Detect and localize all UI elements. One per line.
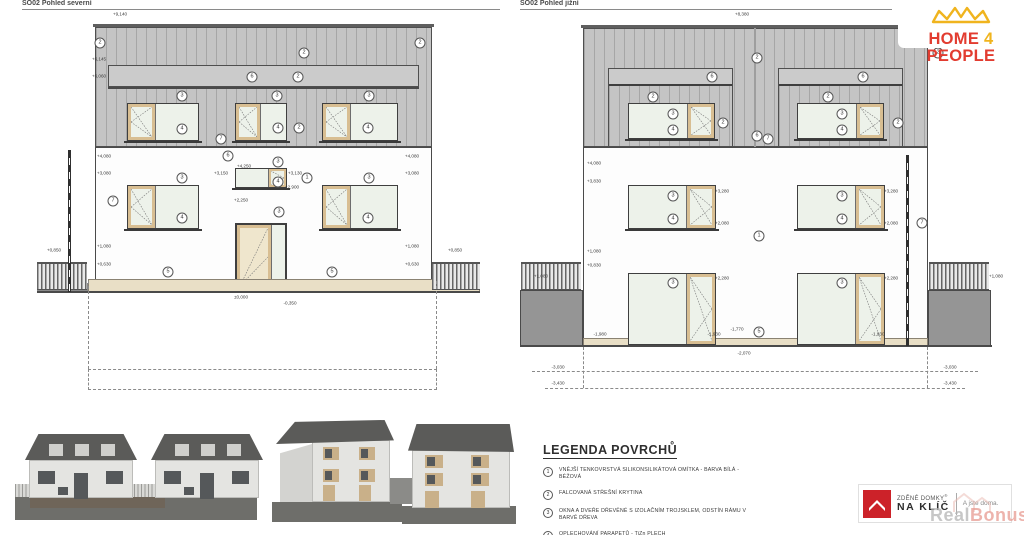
north-marker-circle: 3: [177, 91, 188, 102]
south-fence-right: [929, 262, 989, 290]
north-marker-circle: 3: [272, 91, 283, 102]
north-marker-circle: 4: [273, 177, 284, 188]
south-ground-line: [520, 345, 992, 347]
south-dimension-label: -3,030: [551, 365, 564, 370]
crown-icon: [929, 5, 993, 25]
south-dimension-label: +1,080: [587, 249, 601, 254]
south-dimension-label: +3,830: [587, 179, 601, 184]
legend-num-2: 2: [543, 490, 553, 500]
north-dimension-label: +1,080: [97, 244, 111, 249]
north-window-right: [322, 185, 398, 229]
south-dimension-label: +3,280: [884, 189, 898, 194]
south-elevation-title: SO02 Pohled jižní: [520, 0, 579, 7]
south-marker-circle: 3: [837, 109, 848, 120]
south-dimension-label: -1,930: [707, 332, 720, 337]
south-underground-line-2: [545, 388, 965, 389]
south-dimension-label: +2,280: [715, 276, 729, 281]
south-level-staff: [906, 155, 909, 346]
legend-num-3: 3: [543, 508, 553, 518]
north-foundation-dash-right: [436, 281, 437, 369]
legend-item-3: 3 OKNA A DVEŘE DŘEVĚNÉ S IZOLAČNÍM TROJS…: [543, 508, 778, 522]
south-marker-circle: 6: [752, 131, 763, 142]
render-b-house1-roof: [276, 420, 394, 444]
south-fence-left: [521, 262, 581, 290]
legend-num-1: 1: [543, 467, 553, 477]
north-title-rule: [22, 9, 500, 10]
south-dimension-label: +0,830: [587, 263, 601, 268]
north-marker-circle: 4: [363, 123, 374, 134]
render-front-view: [15, 424, 257, 524]
render-a-house2-roof: [151, 434, 263, 460]
south-marker-circle: 4: [668, 214, 679, 225]
south-dimension-label: +1,080: [989, 274, 1003, 279]
north-dimension-label: +1,080: [405, 244, 419, 249]
north-marker-circle: 2: [294, 123, 305, 134]
legend-text-4: OPLECHOVÁNÍ PARAPETŮ - TiZn PLECH: [559, 531, 666, 535]
north-dimension-label: +6,060: [92, 74, 106, 79]
north-marker-circle: 7: [108, 196, 119, 207]
south-dimension-label: -2,070: [737, 351, 750, 356]
legend-text-3: OKNA A DVEŘE DŘEVĚNÉ S IZOLAČNÍM TROJSKL…: [559, 508, 759, 522]
south-dimension-label: -1,930: [871, 332, 884, 337]
north-dimension-label: +4,080: [405, 154, 419, 159]
north-marker-circle: 4: [363, 213, 374, 224]
south-marker-circle: 6: [707, 72, 718, 83]
north-elevation-title: SO02 Pohled severní: [22, 0, 92, 7]
legend-item-1: 1 VNĚJŠÍ TENKOVRSTVÁ SILIKONSILIKÁTOVÁ O…: [543, 467, 778, 481]
south-marker-circle: 2: [718, 118, 729, 129]
legend-num-4: 4: [543, 531, 553, 535]
south-dimension-label: +2,080: [884, 221, 898, 226]
roof-icon: [863, 490, 891, 518]
south-dimension-label: +4,080: [587, 161, 601, 166]
north-marker-circle: 4: [177, 213, 188, 224]
north-marker-circle: 6: [223, 151, 234, 162]
south-roof-party-line: [754, 28, 756, 147]
south-marker-circle: 4: [837, 125, 848, 136]
legend-text-1: VNĚJŠÍ TENKOVRSTVÁ SILIKONSILIKÁTOVÁ OMÍ…: [559, 467, 759, 481]
north-marker-circle: 2: [299, 48, 310, 59]
north-dimension-label: +3,150: [214, 171, 228, 176]
north-dimension-label: +2,900: [285, 185, 299, 190]
home4people-wordmark: HOME 4 PEOPLE: [898, 31, 1024, 64]
north-roof-window-1: [127, 103, 199, 141]
north-dimension-label: +0,850: [448, 248, 462, 253]
south-dimension-label: +3,280: [715, 189, 729, 194]
south-marker-circle: 1: [754, 231, 765, 242]
south-dimension-label: -1,770: [730, 327, 743, 332]
north-ground-line: [37, 291, 480, 293]
south-marker-circle: 2: [648, 92, 659, 103]
south-marker-circle: 3: [668, 191, 679, 202]
north-dimension-label: +9,140: [113, 12, 127, 17]
north-dimension-label: +3,080: [405, 171, 419, 176]
surface-legend: LEGENDA POVRCHŮ 1 VNĚJŠÍ TENKOVRSTVÁ SIL…: [543, 441, 778, 535]
north-marker-circle: 4: [177, 124, 188, 135]
south-marker-circle: 6: [858, 72, 869, 83]
north-dimension-label: +0,630: [405, 262, 419, 267]
north-marker-circle: 7: [216, 134, 227, 145]
north-dimension-label: +4,080: [97, 154, 111, 159]
south-dimension-label: -3,430: [551, 381, 564, 386]
south-dimension-label: -3,430: [943, 381, 956, 386]
north-roof-window-3: [322, 103, 398, 141]
render-a-house2-wall: [155, 460, 259, 498]
north-dimension-label: +3,130: [288, 171, 302, 176]
north-level-staff: [68, 150, 71, 292]
north-marker-circle: 3: [177, 173, 188, 184]
south-marker-circle: 3: [668, 109, 679, 120]
north-marker-circle: 3: [274, 207, 285, 218]
north-window-left: [127, 185, 199, 229]
south-marker-circle: 4: [668, 125, 679, 136]
render-b-house1-base: [272, 502, 402, 522]
south-retaining-wall-left: [520, 290, 583, 346]
north-marker-circle: 2: [95, 38, 106, 49]
render-a-house1-wall: [29, 460, 133, 498]
north-marker-circle: 4: [273, 123, 284, 134]
south-marker-circle: 3: [668, 278, 679, 289]
north-marker-circle: 2: [415, 38, 426, 49]
south-dimension-label: +2,280: [884, 276, 898, 281]
north-marker-circle: 3: [273, 157, 284, 168]
north-marker-circle: 3: [364, 91, 375, 102]
south-dormer-right-band: [779, 69, 902, 86]
south-marker-circle: 2: [752, 53, 763, 64]
north-marker-circle: 3: [364, 173, 375, 184]
south-dimension-label: -3,030: [943, 365, 956, 370]
south-marker-circle: 2: [823, 92, 834, 103]
north-dimension-label: +0,850: [47, 248, 61, 253]
south-marker-circle: 7: [763, 134, 774, 145]
south-marker-circle: 3: [837, 191, 848, 202]
north-fence-left: [37, 262, 87, 290]
render-b-house2-front: [412, 450, 510, 508]
render-b-house2-roof: [408, 424, 514, 452]
south-dimension-label: -1,980: [593, 332, 606, 337]
realbonus-watermark: RealBonus.cz: [930, 505, 1024, 526]
south-underground-line-1: [532, 371, 978, 372]
render-b-house2-base: [402, 506, 516, 524]
south-foundation-dash-left: [583, 347, 584, 388]
drawing-sheet: SO02 Pohled severní SO02 Pohled jižní: [0, 0, 1024, 535]
south-foundation-dash-right: [927, 347, 928, 388]
south-dimension-label: +2,080: [715, 221, 729, 226]
home4people-logo: HOME 4 PEOPLE: [898, 2, 1024, 48]
north-foundation-dash-left: [88, 281, 89, 369]
south-dimension-label: +8,380: [735, 12, 749, 17]
north-marker-circle: 6: [247, 72, 258, 83]
north-roof-band: [108, 65, 419, 87]
north-dimension-label: +6,145: [92, 57, 106, 62]
north-foundation-outline: [88, 369, 437, 390]
south-dimension-label: +1,080: [534, 274, 548, 279]
legend-title: LEGENDA POVRCHŮ: [543, 443, 677, 459]
north-marker-circle: 5: [163, 267, 174, 278]
render-b-house1-side: [280, 444, 312, 502]
south-marker-circle: 5: [754, 327, 765, 338]
south-title-rule: [520, 9, 892, 10]
render-b-house1-front: [312, 440, 390, 502]
south-retaining-wall-right: [928, 290, 991, 346]
south-marker-circle: 2: [893, 118, 904, 129]
north-marker-circle: 5: [327, 267, 338, 278]
north-marker-circle: 2: [293, 72, 304, 83]
north-fence-right: [432, 262, 480, 290]
north-dimension-label: ±0,000: [234, 295, 248, 300]
legend-item-2: 2 FALCOVANÁ STŘEŠNÍ KRYTINA: [543, 490, 778, 500]
north-dimension-label: +0,630: [97, 262, 111, 267]
north-dimension-label: +4,250: [237, 164, 251, 169]
south-marker-circle: 4: [837, 214, 848, 225]
north-dimension-label: +3,080: [97, 171, 111, 176]
north-marker-circle: 1: [302, 173, 313, 184]
north-roof-band-line: [108, 87, 419, 89]
legend-item-4: 4 OPLECHOVÁNÍ PARAPETŮ - TiZn PLECH: [543, 531, 778, 535]
south-marker-circle: 3: [837, 278, 848, 289]
north-dimension-label: -0,350: [283, 301, 296, 306]
south-marker-circle: 7: [917, 218, 928, 229]
north-dimension-label: +2,250: [234, 198, 248, 203]
render-perspective-view: [272, 416, 516, 532]
legend-text-2: FALCOVANÁ STŘEŠNÍ KRYTINA: [559, 490, 643, 497]
render-a-house1-roof: [25, 434, 137, 460]
